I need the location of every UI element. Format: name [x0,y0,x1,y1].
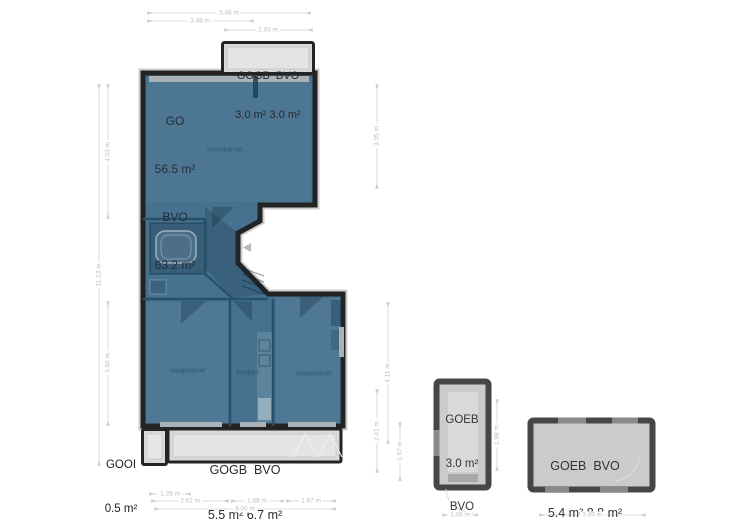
storage-vertical-label: GOEB 3.0 m² BVO 5.7 m² [433,384,491,530]
storage-inner-line: 0.5 m² [95,502,147,517]
dimension-label: 1.28 m [158,491,182,498]
balcony-bottom-line: GOGB BVO [178,463,312,478]
entrance-arrow-icon [243,243,251,252]
dimension-label: 1.67 m [299,498,323,505]
storage-inner-line: GOOI [95,458,147,473]
main-unit-line: GO [139,113,211,129]
storage-horizontal-line: GOEB BVO [531,459,639,475]
room-label-living: woonkamer [207,147,243,154]
dimension-label: 3.05 m [374,124,381,148]
balcony-top-label: GOGB BVO 3.0 m² 3.0 m² [222,44,314,148]
dimension-label: 1.98 m [494,423,501,447]
dimension-label: 11.13 m [96,261,103,288]
room-label-bedroom-left: slaapkamer [170,368,206,375]
balcony-bottom-label: GOGB BVO 5.5 m² 6.7 m² [178,433,312,530]
kitchen-counter-icon [257,332,272,422]
dimension-label: 1.08 m [448,512,472,519]
main-unit-line: BVO [139,209,211,225]
dimension-label: 3.49 m [580,512,604,519]
dimension-label: 5.46 m [217,10,241,17]
main-unit-line: 56.5 m² [139,161,211,177]
dimension-label: 1.88 m [245,498,269,505]
dimension-label: 2.93 m [256,27,280,34]
dimension-label: 3.48 m [188,18,212,25]
main-unit-line: 63.2 m² [139,257,211,273]
dimension-label: 1.67 m [397,439,404,463]
dimension-label: 6.00 m [233,506,257,513]
dimension-label: 3.66 m [105,351,112,375]
dimension-label: 4.11 m [385,361,392,384]
balcony-top-line: GOGB BVO [222,70,314,83]
main-unit-area-label: GO 56.5 m² BVO 63.2 m² [139,81,211,305]
storage-vertical-line: 3.0 m² [433,457,491,472]
floorplan-page: GO 56.5 m² BVO 63.2 m² GOGB BVO 3.0 m² 3… [0,0,750,530]
dimension-label: 4.03 m [105,140,112,164]
dimension-label: 2.41 m [374,419,381,443]
room-label-kitchen: keuken [237,370,260,377]
dimension-label: 2.62 m [178,498,202,505]
storage-vertical-line: GOEB [433,413,491,428]
storage-inner-label: GOOI 0.5 m² BVO 0.8 m² [95,429,147,530]
balcony-top-line: 3.0 m² 3.0 m² [222,109,314,122]
room-label-bedroom-right: slaapkamer [296,371,332,378]
